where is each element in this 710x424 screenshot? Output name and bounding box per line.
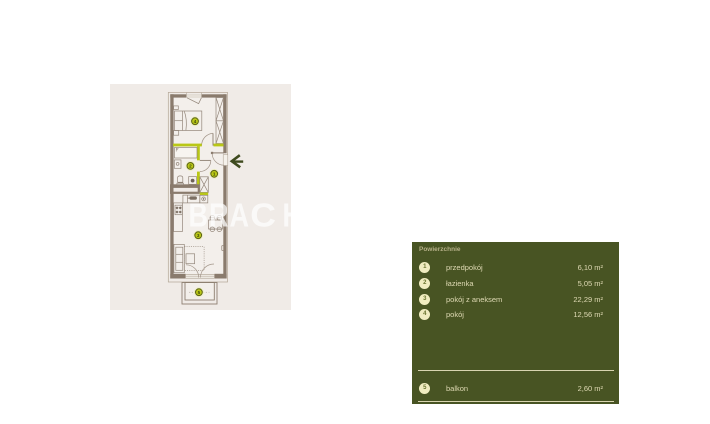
svg-text:4: 4 xyxy=(194,119,197,124)
svg-text:5: 5 xyxy=(198,290,201,295)
svg-text:C: C xyxy=(250,197,276,234)
svg-text:BRA: BRA xyxy=(189,198,251,234)
svg-text:H: H xyxy=(282,198,291,234)
svg-text:2: 2 xyxy=(189,164,192,169)
svg-text:1: 1 xyxy=(213,172,216,177)
